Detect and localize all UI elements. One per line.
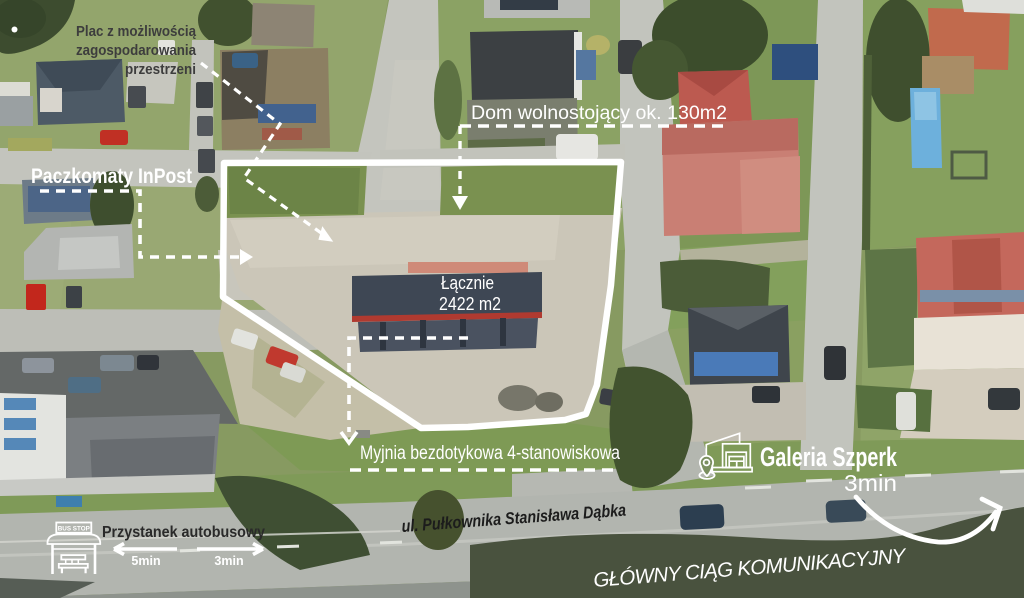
svg-text:2422 m2: 2422 m2: [439, 293, 501, 314]
svg-text:3min: 3min: [844, 470, 897, 496]
svg-text:Plac z możliwością: Plac z możliwością: [76, 23, 197, 40]
svg-text:3min: 3min: [214, 554, 243, 568]
svg-text:5min: 5min: [131, 554, 160, 568]
svg-text:Galeria Szperk: Galeria Szperk: [760, 442, 898, 472]
svg-text:przestrzeni: przestrzeni: [125, 61, 196, 78]
svg-text:Dom wolnostojący ok. 130m2: Dom wolnostojący ok. 130m2: [471, 102, 727, 124]
svg-text:Łącznie: Łącznie: [441, 272, 494, 293]
svg-text:Paczkomaty InPost: Paczkomaty InPost: [31, 165, 192, 188]
svg-text:Myjnia bezdotykowa 4-stanowisk: Myjnia bezdotykowa 4-stanowiskowa: [360, 443, 620, 464]
svg-text:BUS STOP: BUS STOP: [58, 526, 90, 533]
svg-text:zagospodarowania: zagospodarowania: [76, 42, 197, 59]
svg-text:Przystanek autobusowy: Przystanek autobusowy: [102, 524, 265, 541]
